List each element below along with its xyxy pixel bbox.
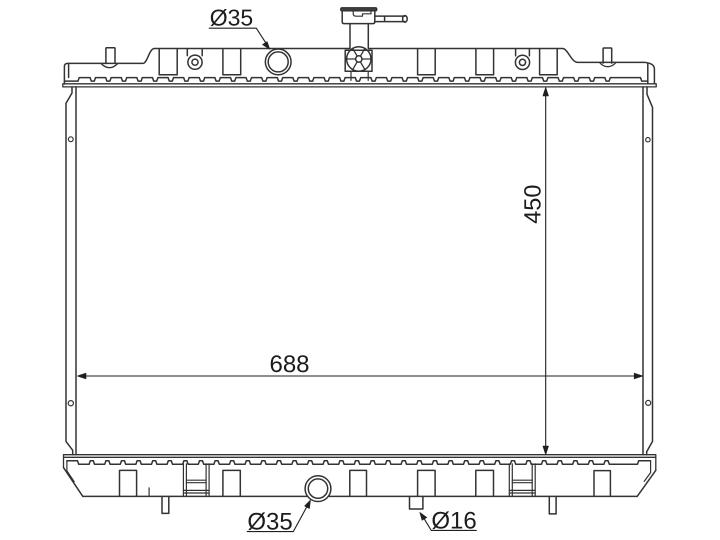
svg-text:688: 688 bbox=[269, 351, 309, 378]
svg-text:Ø35: Ø35 bbox=[210, 5, 253, 31]
svg-text:450: 450 bbox=[519, 185, 545, 224]
